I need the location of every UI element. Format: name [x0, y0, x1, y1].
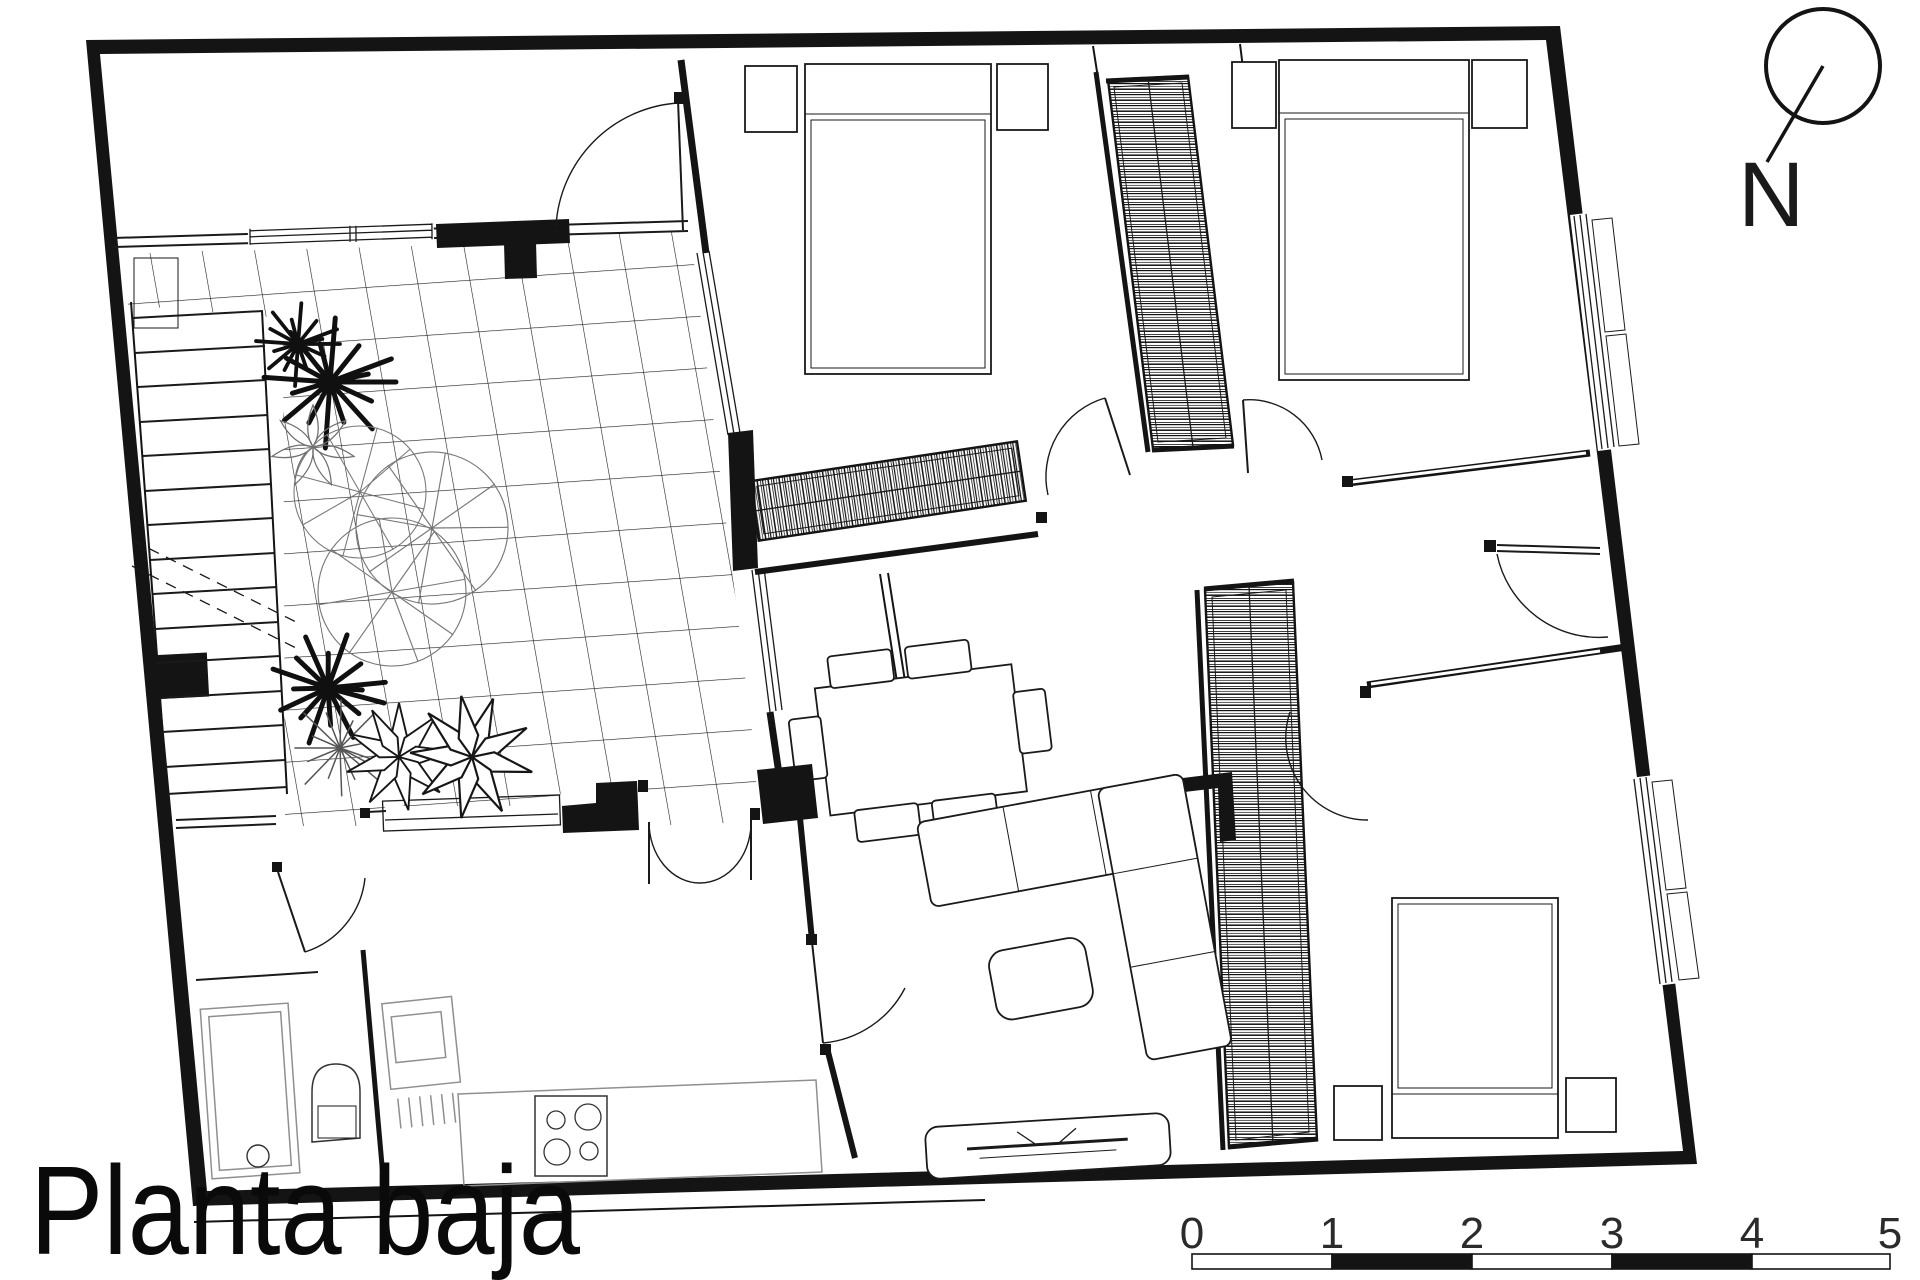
bedroom1-door [1036, 398, 1130, 523]
bedroom1-bed [805, 64, 991, 374]
sheet-title: Planta baja [30, 1140, 581, 1280]
north-arrow: N [1738, 9, 1880, 246]
scale-label-5: 5 [1878, 1209, 1902, 1258]
patio [113, 92, 760, 952]
dining-chair [1013, 688, 1052, 753]
patio-hall-door [272, 808, 370, 952]
kitchen-door [806, 934, 905, 1055]
bathroom-north-wall [196, 972, 318, 980]
bedroom3-north-wall [1360, 646, 1633, 698]
central-wardrobe [1096, 44, 1244, 452]
nightstand [1566, 1078, 1616, 1132]
bedroom2-window [1570, 212, 1639, 451]
floor-plan-sheet: N Planta baja 0 1 2 3 4 5 [0, 0, 1920, 1280]
hall-window [752, 568, 782, 712]
scale-label-4: 4 [1740, 1209, 1764, 1258]
scale-label-1: 1 [1320, 1209, 1344, 1258]
dining-chair [827, 649, 894, 689]
bedroom2-bed [1279, 60, 1469, 380]
nightstand [745, 66, 797, 132]
bedroom2-door [1243, 400, 1322, 473]
bedroom-1 [681, 46, 1130, 774]
porch-wall-pier [436, 219, 570, 248]
living-west-pier [757, 764, 818, 824]
planter-inner-line [385, 814, 558, 820]
kitchen-sink-unit [382, 996, 465, 1129]
scale-label-3: 3 [1600, 1209, 1624, 1258]
scale-bar-segments [1192, 1254, 1890, 1269]
kitchen-east-wall [800, 818, 812, 940]
wall-pier-t [562, 781, 639, 833]
bedroom3-window [1630, 775, 1699, 986]
porch-wall-notch [504, 242, 537, 279]
bedroom2-south-wall [1342, 453, 1590, 487]
bedroom3-wardrobe [1197, 581, 1318, 1150]
scale-label-2: 2 [1460, 1209, 1484, 1258]
bedroom3-bed [1392, 898, 1558, 1138]
bedroom-2 [1232, 60, 1639, 487]
patio-entry-door [556, 92, 686, 230]
sofa-group [916, 774, 1232, 1095]
north-label: N [1738, 144, 1804, 246]
bedroom1-wardrobe [750, 441, 1026, 540]
toilet [312, 1064, 360, 1142]
right-hall [1484, 540, 1608, 637]
kitchen-east-wall-lower [827, 1048, 855, 1158]
floor-plan-drawing: N Planta baja 0 1 2 3 4 5 [0, 0, 1920, 1280]
dish-rack [398, 1093, 456, 1129]
dining-chair [904, 639, 971, 679]
scale-label-0: 0 [1180, 1209, 1204, 1258]
nightstand [1232, 62, 1276, 128]
coffee-table [986, 935, 1095, 1022]
bedroom1-south-wall [755, 534, 1038, 572]
nightstand [1334, 1086, 1382, 1140]
nightstand [1472, 60, 1527, 128]
living-room [757, 764, 1236, 1179]
scale-bar: 0 1 2 3 4 5 [1180, 1209, 1902, 1269]
nightstand [997, 64, 1048, 130]
dining-chair [854, 803, 921, 843]
closet-door [1484, 540, 1608, 637]
kitchen [382, 818, 905, 1186]
